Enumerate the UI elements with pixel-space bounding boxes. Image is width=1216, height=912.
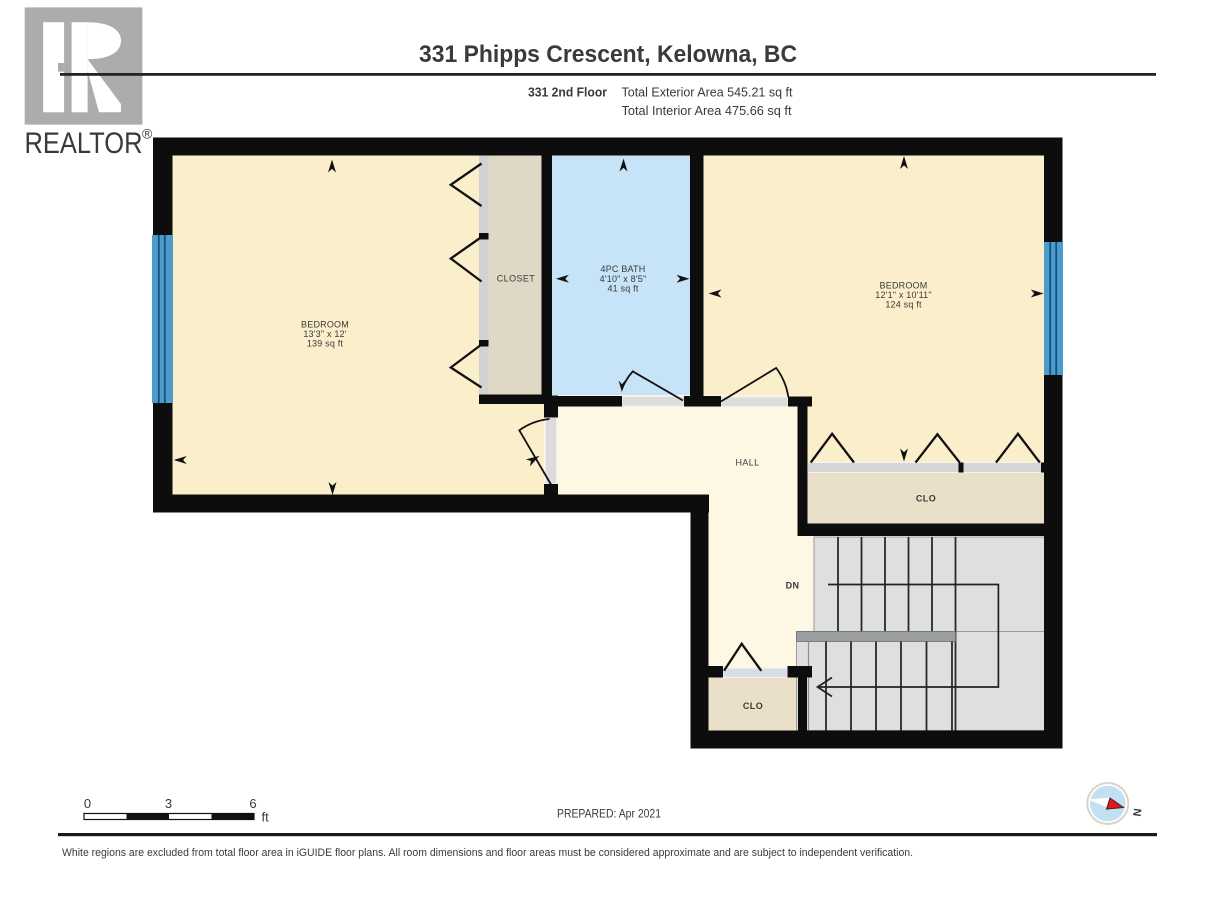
svg-text:BEDROOM: BEDROOM xyxy=(301,319,349,329)
svg-text:ft: ft xyxy=(262,810,270,825)
svg-text:REALTOR: REALTOR xyxy=(25,127,143,160)
svg-text:CLOSET: CLOSET xyxy=(497,274,536,284)
svg-text:White regions are excluded fro: White regions are excluded from total fl… xyxy=(62,847,913,859)
svg-text:DN: DN xyxy=(786,581,800,591)
svg-text:331 Phipps Crescent, Kelowna,: 331 Phipps Crescent, Kelowna, BC xyxy=(419,41,797,68)
svg-text:CLO: CLO xyxy=(916,494,936,504)
svg-text:Total Exterior Area 545.21 sq: Total Exterior Area 545.21 sq ft xyxy=(622,86,794,100)
svg-text:Total Interior Area 475.66 sq: Total Interior Area 475.66 sq ft xyxy=(622,104,793,118)
svg-text:®: ® xyxy=(142,126,153,142)
svg-text:6: 6 xyxy=(249,796,256,811)
svg-text:CLO: CLO xyxy=(743,701,763,711)
svg-text:139 sq ft: 139 sq ft xyxy=(307,339,344,349)
svg-text:4PC BATH: 4PC BATH xyxy=(601,264,646,274)
svg-text:3: 3 xyxy=(165,796,172,811)
svg-text:124 sq ft: 124 sq ft xyxy=(885,299,922,309)
svg-text:41 sq ft: 41 sq ft xyxy=(607,284,638,294)
svg-text:4'10" x 8'5": 4'10" x 8'5" xyxy=(600,274,647,284)
svg-text:N: N xyxy=(1130,808,1143,817)
svg-text:HALL: HALL xyxy=(735,458,759,468)
svg-text:13'3" x 12': 13'3" x 12' xyxy=(303,329,346,339)
svg-text:PREPARED: Apr 2021: PREPARED: Apr 2021 xyxy=(557,807,661,821)
svg-text:331 2nd Floor: 331 2nd Floor xyxy=(528,86,607,100)
svg-text:0: 0 xyxy=(84,796,91,811)
